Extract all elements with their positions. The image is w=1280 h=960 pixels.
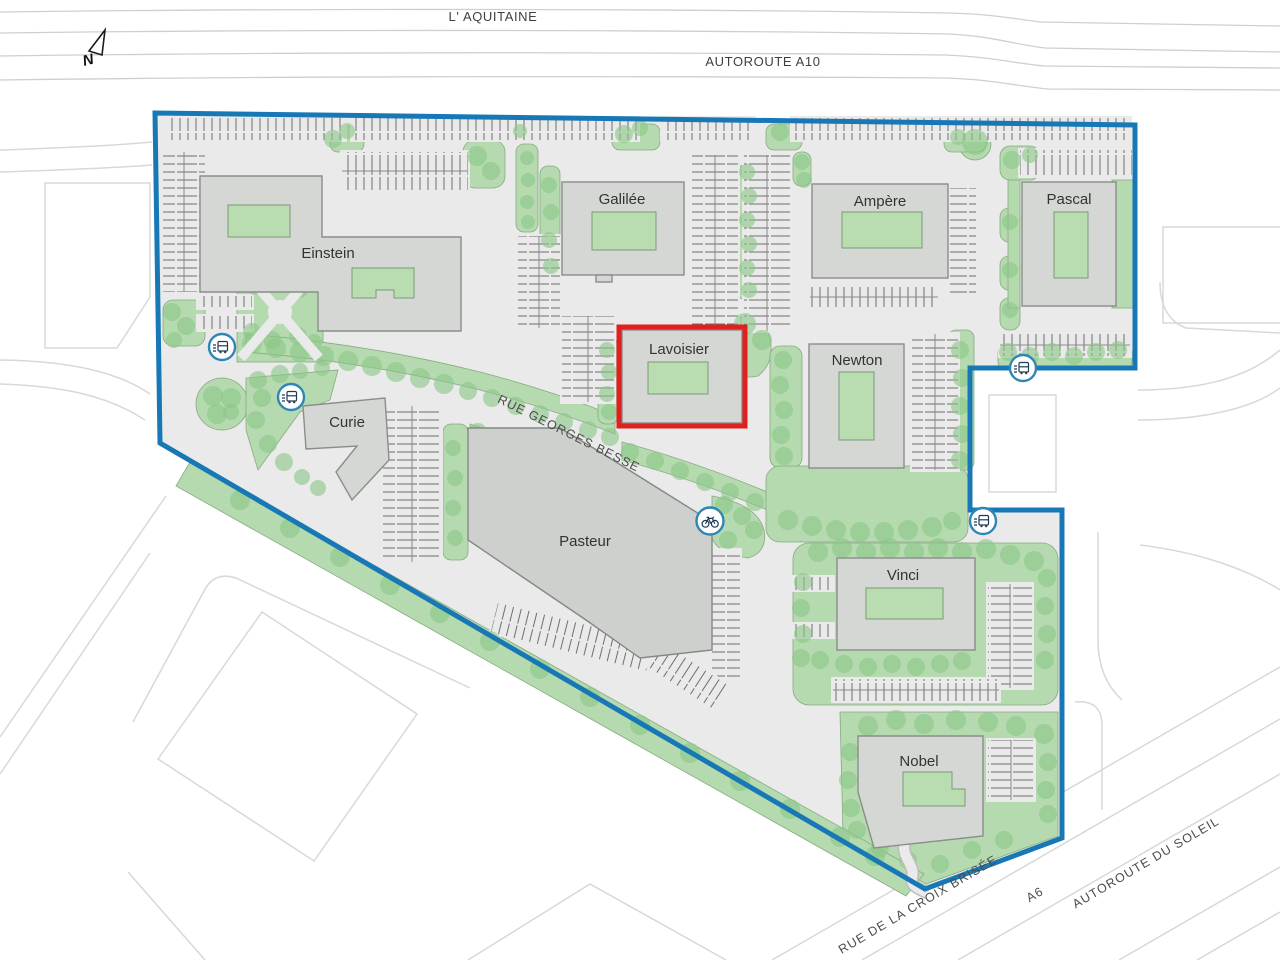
tree-icon	[931, 655, 949, 673]
parking-row	[198, 316, 252, 330]
tree-icon	[543, 204, 559, 220]
tree-icon	[792, 599, 810, 617]
tree-icon	[739, 260, 755, 276]
bus-stop-icon[interactable]	[970, 508, 996, 534]
tree-icon	[995, 831, 1013, 849]
tree-icon	[1039, 753, 1057, 771]
tree-icon	[796, 172, 812, 188]
tree-icon	[1036, 651, 1054, 669]
tree-icon	[249, 371, 267, 389]
tree-icon	[946, 710, 966, 730]
tree-icon	[294, 469, 310, 485]
tree-icon	[445, 440, 461, 456]
tree-icon	[338, 351, 358, 371]
tree-icon	[752, 330, 772, 350]
tree-icon	[541, 232, 557, 248]
tree-icon	[842, 799, 860, 817]
tree-icon	[599, 342, 615, 358]
parking-row	[712, 550, 740, 682]
tree-icon	[1022, 147, 1038, 163]
tree-icon	[520, 195, 534, 209]
tree-icon	[898, 520, 918, 540]
parking-row	[165, 118, 345, 140]
tree-icon	[163, 303, 181, 321]
tree-icon	[746, 493, 764, 511]
tree-icon	[922, 517, 942, 537]
road-label-soleil: AUTOROUTE DU SOLEIL	[1070, 814, 1222, 911]
building-label-pasteur: Pasteur	[559, 533, 611, 550]
tree-icon	[794, 625, 812, 643]
tree-icon	[310, 480, 326, 496]
tree-icon	[931, 855, 949, 873]
tree-icon	[741, 282, 757, 298]
tree-icon	[253, 389, 271, 407]
tree-icon	[696, 473, 714, 491]
tree-icon	[978, 712, 998, 732]
tree-icon	[859, 658, 877, 676]
building-label-ampere: Ampère	[854, 193, 907, 210]
tree-icon	[943, 512, 961, 530]
building-label-newton: Newton	[832, 352, 883, 369]
road-label-a10: AUTOROUTE A10	[705, 54, 820, 69]
tree-icon	[520, 151, 534, 165]
tree-icon	[962, 129, 988, 155]
bus-stop-icon[interactable]	[278, 384, 304, 410]
tree-icon	[1109, 341, 1127, 359]
tree-icon	[951, 341, 969, 359]
tree-icon	[166, 332, 182, 348]
tree-icon	[601, 404, 617, 420]
building-label-nobel: Nobel	[899, 753, 938, 770]
tree-icon	[1002, 302, 1018, 318]
bicycle-icon[interactable]	[697, 508, 724, 535]
tree-icon	[848, 821, 866, 839]
tree-icon	[362, 356, 382, 376]
tree-icon	[646, 452, 664, 470]
parking-row	[352, 118, 638, 140]
building-label-pascal: Pascal	[1046, 191, 1091, 208]
tree-icon	[739, 164, 755, 180]
tree-icon	[775, 447, 793, 465]
tree-icon	[410, 368, 430, 388]
tree-icon	[739, 212, 755, 228]
tree-icon	[850, 522, 870, 542]
tree-icon	[733, 507, 751, 525]
site-plan-map: Einstein Galilée Ampère Pascal Lavoisier…	[0, 0, 1280, 960]
north-arrow: N	[81, 30, 105, 70]
building-vinci[interactable]: Vinci	[837, 558, 975, 650]
tree-icon	[950, 129, 966, 145]
tree-icon	[1038, 569, 1056, 587]
parking-row	[950, 188, 976, 298]
building-newton[interactable]: Newton	[809, 344, 904, 468]
tree-icon	[521, 215, 535, 229]
tree-icon	[314, 360, 330, 376]
tree-icon	[1002, 214, 1018, 230]
tree-icon	[832, 538, 852, 558]
tree-icon	[601, 364, 617, 380]
tree-icon	[1003, 151, 1021, 169]
tree-icon	[841, 743, 859, 761]
building-label-vinci: Vinci	[887, 567, 919, 584]
tree-icon	[928, 538, 948, 558]
tree-icon	[271, 365, 289, 383]
tree-icon	[447, 530, 463, 546]
tree-icon	[951, 397, 969, 415]
tree-icon	[745, 521, 763, 539]
tree-icon	[951, 451, 969, 469]
tree-icon	[883, 655, 901, 673]
tree-icon	[826, 520, 846, 540]
tree-icon	[339, 123, 355, 139]
tree-icon	[792, 649, 810, 667]
tree-icon	[1087, 343, 1105, 361]
tree-icon	[615, 125, 633, 143]
tree-icon	[774, 351, 792, 369]
road-label-a6: A6	[1024, 884, 1046, 905]
tree-icon	[1043, 343, 1061, 361]
tree-icon	[794, 573, 812, 591]
tree-icon	[1024, 551, 1044, 571]
building-label-einstein: Einstein	[301, 245, 354, 262]
tree-icon	[1065, 347, 1083, 365]
tree-icon	[177, 317, 195, 335]
tree-icon	[386, 362, 406, 382]
tree-icon	[741, 236, 757, 252]
building-nobel[interactable]: Nobel	[858, 736, 983, 848]
tree-icon	[541, 177, 557, 193]
tree-icon	[1000, 545, 1020, 565]
road-label-aquitaine: L' AQUITAINE	[449, 9, 538, 24]
tree-icon	[839, 771, 857, 789]
tree-icon	[434, 374, 454, 394]
tree-icon	[1037, 781, 1055, 799]
tree-icon	[953, 652, 971, 670]
building-pascal[interactable]: Pascal	[1022, 182, 1116, 306]
tree-icon	[445, 500, 461, 516]
tree-icon	[802, 516, 822, 536]
tree-icon	[886, 710, 906, 730]
tree-icon	[482, 162, 500, 180]
tree-icon	[1002, 262, 1018, 278]
tree-icon	[1038, 625, 1056, 643]
tree-icon	[247, 411, 265, 429]
tree-icon	[741, 188, 757, 204]
building-galilee[interactable]: Galilée	[562, 182, 684, 282]
building-ampere[interactable]: Ampère	[812, 184, 948, 278]
tree-icon	[858, 716, 878, 736]
tree-icon	[1039, 805, 1057, 823]
tree-icon	[719, 531, 737, 549]
tree-icon	[521, 173, 535, 187]
tree-icon	[513, 124, 527, 138]
tree-icon	[203, 386, 223, 406]
bus-stop-icon[interactable]	[1010, 355, 1036, 381]
tree-icon	[543, 258, 559, 274]
tree-icon	[811, 651, 829, 669]
tree-icon	[671, 462, 689, 480]
tree-icon	[907, 658, 925, 676]
parking-row	[198, 296, 252, 308]
map-canvas: Einstein Galilée Ampère Pascal Lavoisier…	[0, 0, 1280, 960]
tree-icon	[880, 538, 900, 558]
tree-icon	[1034, 724, 1054, 744]
tree-icon	[976, 539, 996, 559]
tree-icon	[808, 542, 828, 562]
tree-icon	[772, 426, 790, 444]
tree-icon	[771, 376, 789, 394]
tree-icon	[775, 401, 793, 419]
tree-icon	[1006, 716, 1026, 736]
tree-icon	[914, 714, 934, 734]
tree-icon	[778, 510, 798, 530]
building-lavoisier[interactable]: Lavoisier	[622, 330, 742, 423]
building-label-galilee: Galilée	[599, 191, 646, 208]
bus-stop-icon[interactable]	[209, 334, 235, 360]
tree-icon	[259, 435, 277, 453]
tree-icon	[835, 655, 853, 673]
tree-icon	[459, 382, 477, 400]
tree-icon	[275, 453, 293, 471]
tree-icon	[632, 120, 648, 136]
tree-icon	[963, 841, 981, 859]
tree-icon	[292, 363, 308, 379]
tree-icon	[794, 154, 810, 170]
tree-icon	[771, 123, 789, 141]
tree-icon	[467, 146, 487, 166]
building-label-lavoisier: Lavoisier	[649, 341, 709, 358]
tree-icon	[447, 470, 463, 486]
tree-icon	[599, 386, 615, 402]
building-label-curie: Curie	[329, 414, 365, 431]
tree-icon	[223, 404, 239, 420]
tree-icon	[1036, 597, 1054, 615]
